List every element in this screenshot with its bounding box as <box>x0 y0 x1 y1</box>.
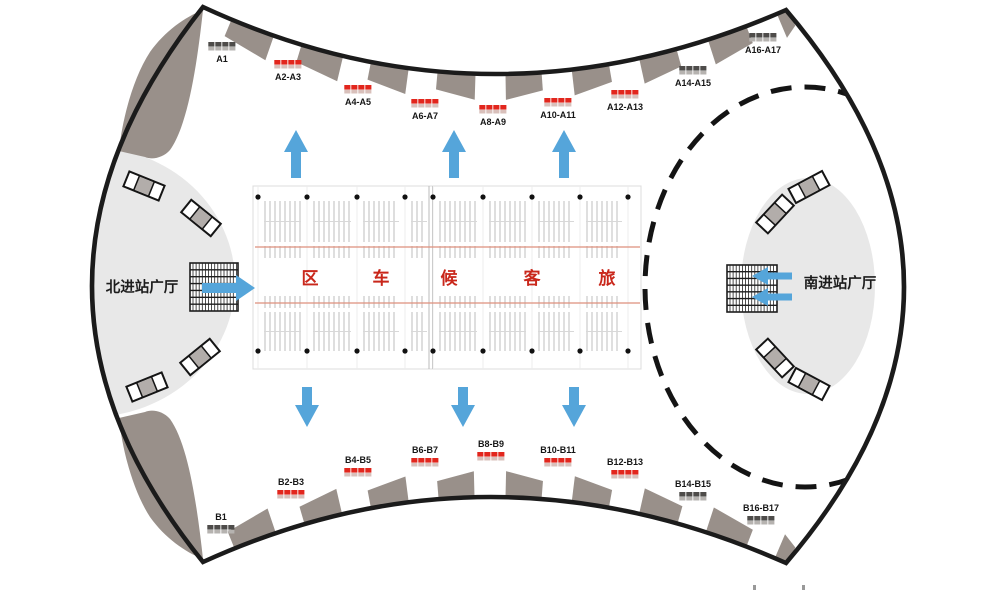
gate-marker-light <box>565 458 571 463</box>
gate-marker-light <box>291 490 297 495</box>
gate-marker-base <box>618 95 624 99</box>
gate-marker-base <box>291 495 297 499</box>
gate-marker-base <box>221 530 227 534</box>
gate-marker-base <box>288 65 294 69</box>
boarding-gates-bottom: B1B2-B3B4-B5B6-B7B8-B9B10-B11B12-B13B14-… <box>207 439 779 534</box>
gate-marker-base <box>679 497 685 501</box>
gate-marker-light <box>491 452 497 457</box>
gate-marker-light <box>284 490 290 495</box>
gate-marker-base <box>432 104 438 108</box>
flow-arrow-up <box>442 130 466 178</box>
gate-marker-light <box>632 470 638 475</box>
gate-label: A2-A3 <box>275 72 301 82</box>
waiting-area-char: 候 <box>441 268 459 288</box>
gate-marker-base <box>747 521 753 525</box>
gate-marker-light <box>679 66 685 71</box>
column-dot <box>430 348 435 353</box>
gate-marker-light <box>411 99 417 104</box>
gate-marker-base <box>544 103 550 107</box>
boarding-gate: A2-A3 <box>274 60 301 82</box>
column-dot <box>354 348 359 353</box>
gate-marker-base <box>229 47 235 51</box>
gate-label: A16-A17 <box>745 45 781 55</box>
column-dot <box>354 194 359 199</box>
gate-marker-light <box>686 492 692 497</box>
gate-label: B14-B15 <box>675 479 711 489</box>
gate-marker-base <box>756 38 762 42</box>
gate-marker-light <box>486 105 492 110</box>
column-dot <box>304 194 309 199</box>
gate-marker-light <box>477 452 483 457</box>
gate-marker-base <box>625 95 631 99</box>
gate-label: A8-A9 <box>480 117 506 127</box>
gate-marker-base <box>632 475 638 479</box>
gate-marker-light <box>754 516 760 521</box>
gate-marker-light <box>693 492 699 497</box>
gate-marker-base <box>693 71 699 75</box>
gate-marker-light <box>425 99 431 104</box>
gate-marker-light <box>611 90 617 95</box>
gate-marker-light <box>358 468 364 473</box>
flow-arrow-down <box>295 387 319 427</box>
gate-marker-light <box>215 42 221 47</box>
column-dot <box>402 348 407 353</box>
boarding-gates-top: A1A2-A3A4-A5A6-A7A8-A9A10-A11A12-A13A14-… <box>208 33 781 127</box>
gate-marker-light <box>558 458 564 463</box>
gate-marker-light <box>611 470 617 475</box>
flow-arrow-down <box>451 387 475 427</box>
gate-label: B6-B7 <box>412 445 438 455</box>
boarding-gate: A6-A7 <box>411 99 438 121</box>
boarding-gate: B4-B5 <box>344 455 371 477</box>
gate-marker-base <box>298 495 304 499</box>
boarding-gate: A14-A15 <box>675 66 711 88</box>
gate-label: B16-B17 <box>743 503 779 513</box>
gate-marker-light <box>418 99 424 104</box>
column-dot <box>480 194 485 199</box>
gate-marker-base <box>344 473 350 477</box>
gate-marker-light <box>558 98 564 103</box>
gate-marker-light <box>344 468 350 473</box>
gate-marker-base <box>498 457 504 461</box>
roof-wedge <box>437 471 474 499</box>
gate-marker-base <box>425 463 431 467</box>
boarding-gate: B2-B3 <box>277 477 304 499</box>
gate-marker-light <box>565 98 571 103</box>
gate-label: B1 <box>215 512 227 522</box>
gate-marker-base <box>351 90 357 94</box>
boarding-gate: B1 <box>207 512 234 534</box>
corner-structure-top-left <box>119 10 203 158</box>
boarding-gate: A1 <box>208 42 235 64</box>
gate-label: A1 <box>216 54 228 64</box>
gate-marker-base <box>544 463 550 467</box>
gate-marker-light <box>551 98 557 103</box>
gate-marker-light <box>768 516 774 521</box>
column-dot <box>430 194 435 199</box>
gate-marker-base <box>565 103 571 107</box>
waiting-area-char: 客 <box>523 268 542 288</box>
gate-marker-light <box>700 66 706 71</box>
gate-label: A6-A7 <box>412 111 438 121</box>
gate-label: A10-A11 <box>540 110 576 120</box>
gate-marker-base <box>611 95 617 99</box>
gate-marker-base <box>432 463 438 467</box>
gate-marker-light <box>214 525 220 530</box>
gate-marker-light <box>274 60 280 65</box>
roof-wedge <box>506 471 543 499</box>
gate-marker-base <box>274 65 280 69</box>
gate-marker-light <box>365 468 371 473</box>
column-dot <box>255 348 260 353</box>
column-dot <box>304 348 309 353</box>
boarding-gate: B14-B15 <box>675 479 711 501</box>
boarding-gate: B10-B11 <box>540 445 576 467</box>
gate-marker-base <box>295 65 301 69</box>
column-dot <box>625 348 630 353</box>
gate-marker-light <box>618 90 624 95</box>
gate-label: B4-B5 <box>345 455 371 465</box>
gate-marker-light <box>479 105 485 110</box>
gate-marker-base <box>228 530 234 534</box>
boarding-gate: B6-B7 <box>411 445 438 467</box>
gate-marker-base <box>477 457 483 461</box>
gate-marker-base <box>679 71 685 75</box>
gate-marker-base <box>632 95 638 99</box>
gate-marker-base <box>763 38 769 42</box>
column-dot <box>529 348 534 353</box>
gate-marker-base <box>491 457 497 461</box>
gate-marker-light <box>295 60 301 65</box>
waiting-area-char: 区 <box>302 269 319 288</box>
boarding-gate: A8-A9 <box>479 105 506 127</box>
gate-marker-light <box>498 452 504 457</box>
gate-marker-light <box>418 458 424 463</box>
gate-marker-light <box>686 66 692 71</box>
gate-marker-light <box>632 90 638 95</box>
gate-marker-base <box>770 38 776 42</box>
gate-marker-light <box>207 525 213 530</box>
gate-label: B2-B3 <box>278 477 304 487</box>
gate-marker-base <box>558 103 564 107</box>
gate-marker-light <box>228 525 234 530</box>
gate-marker-light <box>221 525 227 530</box>
column-dot <box>480 348 485 353</box>
gate-marker-light <box>432 458 438 463</box>
gate-marker-base <box>493 110 499 114</box>
gate-marker-light <box>432 99 438 104</box>
gate-marker-light <box>425 458 431 463</box>
gate-marker-base <box>484 457 490 461</box>
column-dot <box>529 194 534 199</box>
boarding-gate: B8-B9 <box>477 439 504 461</box>
gate-marker-base <box>411 463 417 467</box>
gate-marker-light <box>756 33 762 38</box>
south-hall-label: 南进站广厅 <box>804 274 877 292</box>
gate-marker-base <box>486 110 492 114</box>
column-dot <box>255 194 260 199</box>
gate-marker-light <box>365 85 371 90</box>
gate-marker-base <box>500 110 506 114</box>
edge-tick <box>753 585 756 590</box>
gate-marker-light <box>700 492 706 497</box>
boarding-gate: A10-A11 <box>540 98 576 120</box>
gate-marker-base <box>761 521 767 525</box>
flow-arrow-up <box>552 130 576 178</box>
gate-marker-base <box>425 104 431 108</box>
column-dot <box>625 194 630 199</box>
gate-marker-base <box>214 530 220 534</box>
corner-structure-bottom-left <box>119 411 203 559</box>
gate-marker-light <box>493 105 499 110</box>
column-dot <box>577 348 582 353</box>
gate-marker-base <box>365 90 371 94</box>
gate-marker-base <box>558 463 564 467</box>
gate-marker-light <box>351 85 357 90</box>
gate-label: A4-A5 <box>345 97 371 107</box>
gate-marker-base <box>207 530 213 534</box>
gate-marker-light <box>749 33 755 38</box>
column-dot <box>577 194 582 199</box>
gate-marker-base <box>281 65 287 69</box>
gate-label: A14-A15 <box>675 78 711 88</box>
gate-marker-base <box>768 521 774 525</box>
gate-marker-light <box>551 458 557 463</box>
station-map-canvas: 区车候客旅 A1A2-A3A4-A5A6-A7A8-A9A10-A11A12-A… <box>0 0 1008 590</box>
gate-marker-base <box>418 463 424 467</box>
gate-marker-base <box>277 495 283 499</box>
gate-marker-base <box>351 473 357 477</box>
gate-marker-light <box>747 516 753 521</box>
gate-marker-base <box>358 90 364 94</box>
boarding-gate: B16-B17 <box>743 503 779 525</box>
boarding-gate: B12-B13 <box>607 457 643 479</box>
gate-marker-base <box>618 475 624 479</box>
flow-arrow-down <box>562 387 586 427</box>
boarding-gate: A12-A13 <box>607 90 643 112</box>
gate-marker-base <box>749 38 755 42</box>
gate-marker-light <box>298 490 304 495</box>
gate-marker-light <box>618 470 624 475</box>
north-hall-label: 北进站广厅 <box>106 278 179 296</box>
edge-tick <box>802 585 805 590</box>
gate-marker-light <box>693 66 699 71</box>
gate-marker-base <box>625 475 631 479</box>
gate-marker-light <box>500 105 506 110</box>
gate-marker-base <box>686 71 692 75</box>
gate-marker-light <box>544 458 550 463</box>
roof-wedge <box>506 72 543 100</box>
gate-label: B8-B9 <box>478 439 504 449</box>
gate-marker-light <box>277 490 283 495</box>
gate-marker-base <box>208 47 214 51</box>
gate-marker-light <box>281 60 287 65</box>
gate-marker-base <box>222 47 228 51</box>
waiting-area: 区车候客旅 <box>253 186 641 369</box>
gate-marker-base <box>365 473 371 477</box>
gate-marker-light <box>208 42 214 47</box>
gate-marker-light <box>679 492 685 497</box>
boarding-gate: A4-A5 <box>344 85 371 107</box>
gate-marker-base <box>565 463 571 467</box>
gate-marker-base <box>686 497 692 501</box>
column-dot <box>402 194 407 199</box>
gate-label: B12-B13 <box>607 457 643 467</box>
gate-marker-base <box>700 71 706 75</box>
gate-marker-base <box>284 495 290 499</box>
gate-marker-light <box>770 33 776 38</box>
waiting-area-char: 旅 <box>599 268 616 288</box>
gate-label: B10-B11 <box>540 445 576 455</box>
gate-marker-base <box>611 475 617 479</box>
gate-marker-base <box>479 110 485 114</box>
gate-marker-base <box>754 521 760 525</box>
station-floorplan: 区车候客旅 A1A2-A3A4-A5A6-A7A8-A9A10-A11A12-A… <box>0 0 1008 590</box>
flow-arrow-up <box>284 130 308 178</box>
gate-label: A12-A13 <box>607 102 643 112</box>
gate-marker-light <box>763 33 769 38</box>
gate-marker-light <box>761 516 767 521</box>
gate-marker-base <box>344 90 350 94</box>
gate-marker-light <box>625 90 631 95</box>
gate-marker-light <box>351 468 357 473</box>
gate-marker-base <box>411 104 417 108</box>
gate-marker-light <box>411 458 417 463</box>
waiting-area-char: 车 <box>373 268 390 288</box>
security-gate-array-south <box>727 265 777 312</box>
gate-marker-light <box>625 470 631 475</box>
gate-marker-base <box>358 473 364 477</box>
gate-marker-light <box>544 98 550 103</box>
gate-marker-light <box>222 42 228 47</box>
gate-marker-light <box>229 42 235 47</box>
gate-marker-base <box>215 47 221 51</box>
gate-marker-base <box>693 497 699 501</box>
gate-marker-base <box>551 463 557 467</box>
gate-marker-light <box>484 452 490 457</box>
gate-marker-base <box>551 103 557 107</box>
gate-marker-light <box>344 85 350 90</box>
gate-marker-base <box>418 104 424 108</box>
gate-marker-light <box>288 60 294 65</box>
gate-marker-light <box>358 85 364 90</box>
gate-marker-base <box>700 497 706 501</box>
